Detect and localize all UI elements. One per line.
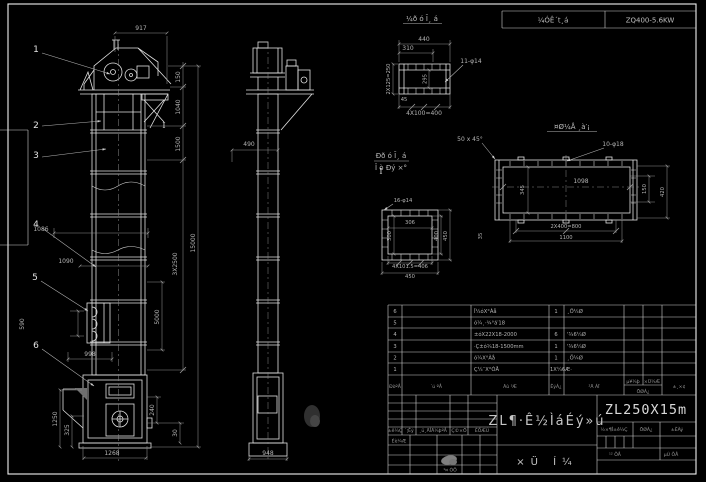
dim-450b: 450 <box>405 274 415 280</box>
bom-header-row: ÐòºÅ ´ú ºÅ Ãû ³Æ ÊýÁ¿ ²Ä ÁÏ µ¥¼þ ×Ü¼Æ ÖØ… <box>389 378 685 395</box>
dim-1250: 1250 <box>52 411 59 426</box>
dim-45: 45 <box>401 97 408 103</box>
section-mark-I: I <box>162 121 165 130</box>
title-block: ±ê¼Ç ´¦Êý ¸ü¸ÄÎÄ¼þºÅ Ç©×Ö ÈÕÆÚ Éè¼Æ ¹¤ Ò… <box>388 395 696 474</box>
bom-name: Î¼óX°Àå <box>474 308 497 315</box>
dim-1090: 1090 <box>58 258 73 265</box>
rev-file-label: ¸ü¸ÄÎÄ¼þºÅ <box>419 427 448 434</box>
callout-5: 5 <box>32 273 38 283</box>
chamfer-note: 50 x 45° <box>457 136 483 143</box>
dim-450r: 450 <box>443 231 449 241</box>
bom-material: '¾6¼Ø <box>567 331 586 338</box>
smudge-artifact <box>304 405 320 427</box>
detail-a-title: ¼ð ó Ī¸ á <box>406 14 438 23</box>
dim-15000: 15000 <box>190 233 197 252</box>
dim-295: 295 <box>423 74 429 84</box>
detail-channel-flange: ¼ð ó Ī¸ á 440 310 2X125=250 295 11-φ14 4… <box>386 14 482 117</box>
dim-4x100: 4X100=400 <box>406 110 442 117</box>
bom-header-weight: ÖØÁ¿ <box>637 388 650 395</box>
bom-seq: 2 <box>393 356 396 362</box>
dim-35: 35 <box>478 233 484 240</box>
bom-header-seq: ÐòºÅ <box>389 383 402 390</box>
dim-2x125: 2X125=250 <box>386 63 392 94</box>
header-left-label: ¼ÓÊ´t¸á <box>538 16 569 25</box>
bom-header-material: ²Ä ÁÏ <box>589 383 601 390</box>
dim-420: 420 <box>660 187 666 197</box>
front-callouts: 1 2 3 4 5 6 <box>32 45 110 386</box>
model-number: ZL250X15m <box>605 402 687 418</box>
dim-5000: 5000 <box>154 309 161 324</box>
dim-998: 998 <box>84 351 96 358</box>
bom-qty: 1 <box>554 344 557 350</box>
rev-sign-label: Ç©×Ö <box>451 427 467 434</box>
detail-square-flange: Ðð ó Ī¸ á Î ò Ðý ×° I 16-φ14 306 300 400… <box>374 151 452 280</box>
callout-4: 4 <box>33 220 39 230</box>
bom-name: ±óX22X18-2000 <box>474 331 517 338</box>
dim-310: 310 <box>402 45 414 52</box>
dim-1040: 1040 <box>175 99 182 114</box>
bom-material: ¸Ö¼Ø <box>567 355 583 362</box>
hole-note-10: 10-φ18 <box>602 141 624 148</box>
dim-4x101: 4X101.5=406 <box>392 264 428 270</box>
weight-label: ÖØÁ¿ <box>640 426 653 433</box>
callout-3: 3 <box>33 151 39 161</box>
total-sheets-label: ¹² ÕÅ <box>609 451 622 458</box>
sheet-name: ×Ü Í¼ <box>516 455 578 468</box>
border-frame <box>8 4 696 474</box>
bom-name: ·Ç±ó¾18-1500mm <box>474 343 524 350</box>
bom-seq: 3 <box>393 344 396 350</box>
bom-name: ó¼X°Àå <box>474 355 495 362</box>
dim-590: 590 <box>19 318 26 330</box>
bom-qty: 1X¼6Æ· <box>550 367 572 373</box>
bom-header-unit: µ¥¼þ <box>626 379 639 385</box>
side-geometry <box>246 42 314 462</box>
bom-header-remark: ±¸×¢ <box>673 384 686 390</box>
rev-mark-label: ±ê¼Ç <box>388 427 402 434</box>
stage-mark-label: ½×¶Î±ê¼Ç <box>601 426 628 433</box>
bom-name: Ç¼¨X°ÓÅ <box>474 366 499 373</box>
dim-150r: 150 <box>642 184 648 194</box>
scale-label: ±ÈÀý <box>671 425 684 433</box>
dim-490: 490 <box>243 141 255 148</box>
stamp-blob <box>440 454 458 466</box>
bom-seq: 4 <box>393 332 397 338</box>
dim-345: 345 <box>520 185 526 195</box>
detail-b-geometry <box>492 155 640 225</box>
bom-header-qty: ÊýÁ¿ <box>550 382 562 390</box>
detail-large-flange: ¤Ø¼Å ¸à′¡ 50 x 45° 10-φ18 1098 345 2X400… <box>457 122 670 243</box>
dim-2x400: 2X400=800 <box>550 224 581 230</box>
bom-qty: 6 <box>554 332 557 338</box>
binding-margin-marks <box>0 130 28 245</box>
cad-sheet: 917 150 1040 1500 3X2500 5000 15000 1086… <box>0 0 706 482</box>
header-band: ¼ÓÊ´t¸á ZQ400-5.6KW <box>502 11 696 28</box>
process-label: ¹¤ ÒÕ <box>443 467 457 474</box>
dim-3x2500: 3X2500 <box>172 252 179 275</box>
bom-name: ó¼¸·¾°á′18 <box>474 320 505 327</box>
dim-30: 30 <box>172 429 179 437</box>
bom-seq: 1 <box>393 367 396 373</box>
dim-1100: 1100 <box>559 235 572 241</box>
detail-c-title: Ðð ó Ī¸ á <box>376 151 407 160</box>
bom-qty: 1 <box>554 309 557 315</box>
detail-a-annotations: ¼ð ó Ī¸ á 440 310 2X125=250 295 11-φ14 4… <box>386 14 482 117</box>
front-view: 917 150 1040 1500 3X2500 5000 15000 1086… <box>19 25 201 462</box>
dim-150: 150 <box>175 71 182 83</box>
dim-917: 917 <box>135 25 147 32</box>
section-mark-I2: I <box>379 167 382 176</box>
designer-label: Éè¼Æ <box>392 437 407 445</box>
bom-table: 6 Î¼óX°Àå 1 ¸Ö¼Ø 5 ó¼¸·¾°á′18 4 ±óX22X18… <box>388 305 696 474</box>
callout-1: 1 <box>33 45 39 55</box>
dim-400: 400 <box>434 231 440 241</box>
bom-seq: 5 <box>393 321 396 327</box>
dim-325: 325 <box>64 424 71 436</box>
header-right-label: ZQ400-5.6KW <box>626 17 675 25</box>
side-view: 490 948 <box>232 42 320 462</box>
cad-drawing: 917 150 1040 1500 3X2500 5000 15000 1086… <box>0 0 706 482</box>
dim-300: 300 <box>387 231 393 241</box>
dim-1098: 1098 <box>573 178 588 185</box>
bom-header-name: Ãû ³Æ <box>503 383 517 390</box>
bom-seq: 6 <box>393 309 396 315</box>
bom-header-total: ×Ü¼Æ <box>644 378 661 385</box>
dim-306: 306 <box>405 220 415 226</box>
callout-2: 2 <box>33 121 39 131</box>
bom-qty: 1 <box>554 356 557 362</box>
sheet-number-label: µÚ ÕÅ <box>664 451 679 458</box>
product-title: ZL¶·Ê½ÌáÉý»ú <box>488 413 605 429</box>
detail-b-title: ¤Ø¼Å ¸à′¡ <box>554 122 590 131</box>
dim-440: 440 <box>418 36 430 43</box>
bom-material: '¾6¼Ø <box>567 343 586 350</box>
bom-header-code: ´ú ºÅ <box>430 383 443 390</box>
hole-note-11: 11-φ14 <box>460 58 482 65</box>
dim-240: 240 <box>149 404 156 416</box>
hole-note-16: 16-φ14 <box>394 198 413 204</box>
dim-948: 948 <box>262 450 274 457</box>
detail-b-annotations: 50 x 45° 10-φ18 1098 345 2X400=800 1100 … <box>457 136 670 243</box>
dim-1268: 1268 <box>104 450 119 457</box>
dim-1500: 1500 <box>175 136 182 151</box>
bom-material: ¸Ö¼Ø <box>567 308 583 315</box>
front-geometry <box>63 40 171 462</box>
callout-6: 6 <box>33 341 39 351</box>
